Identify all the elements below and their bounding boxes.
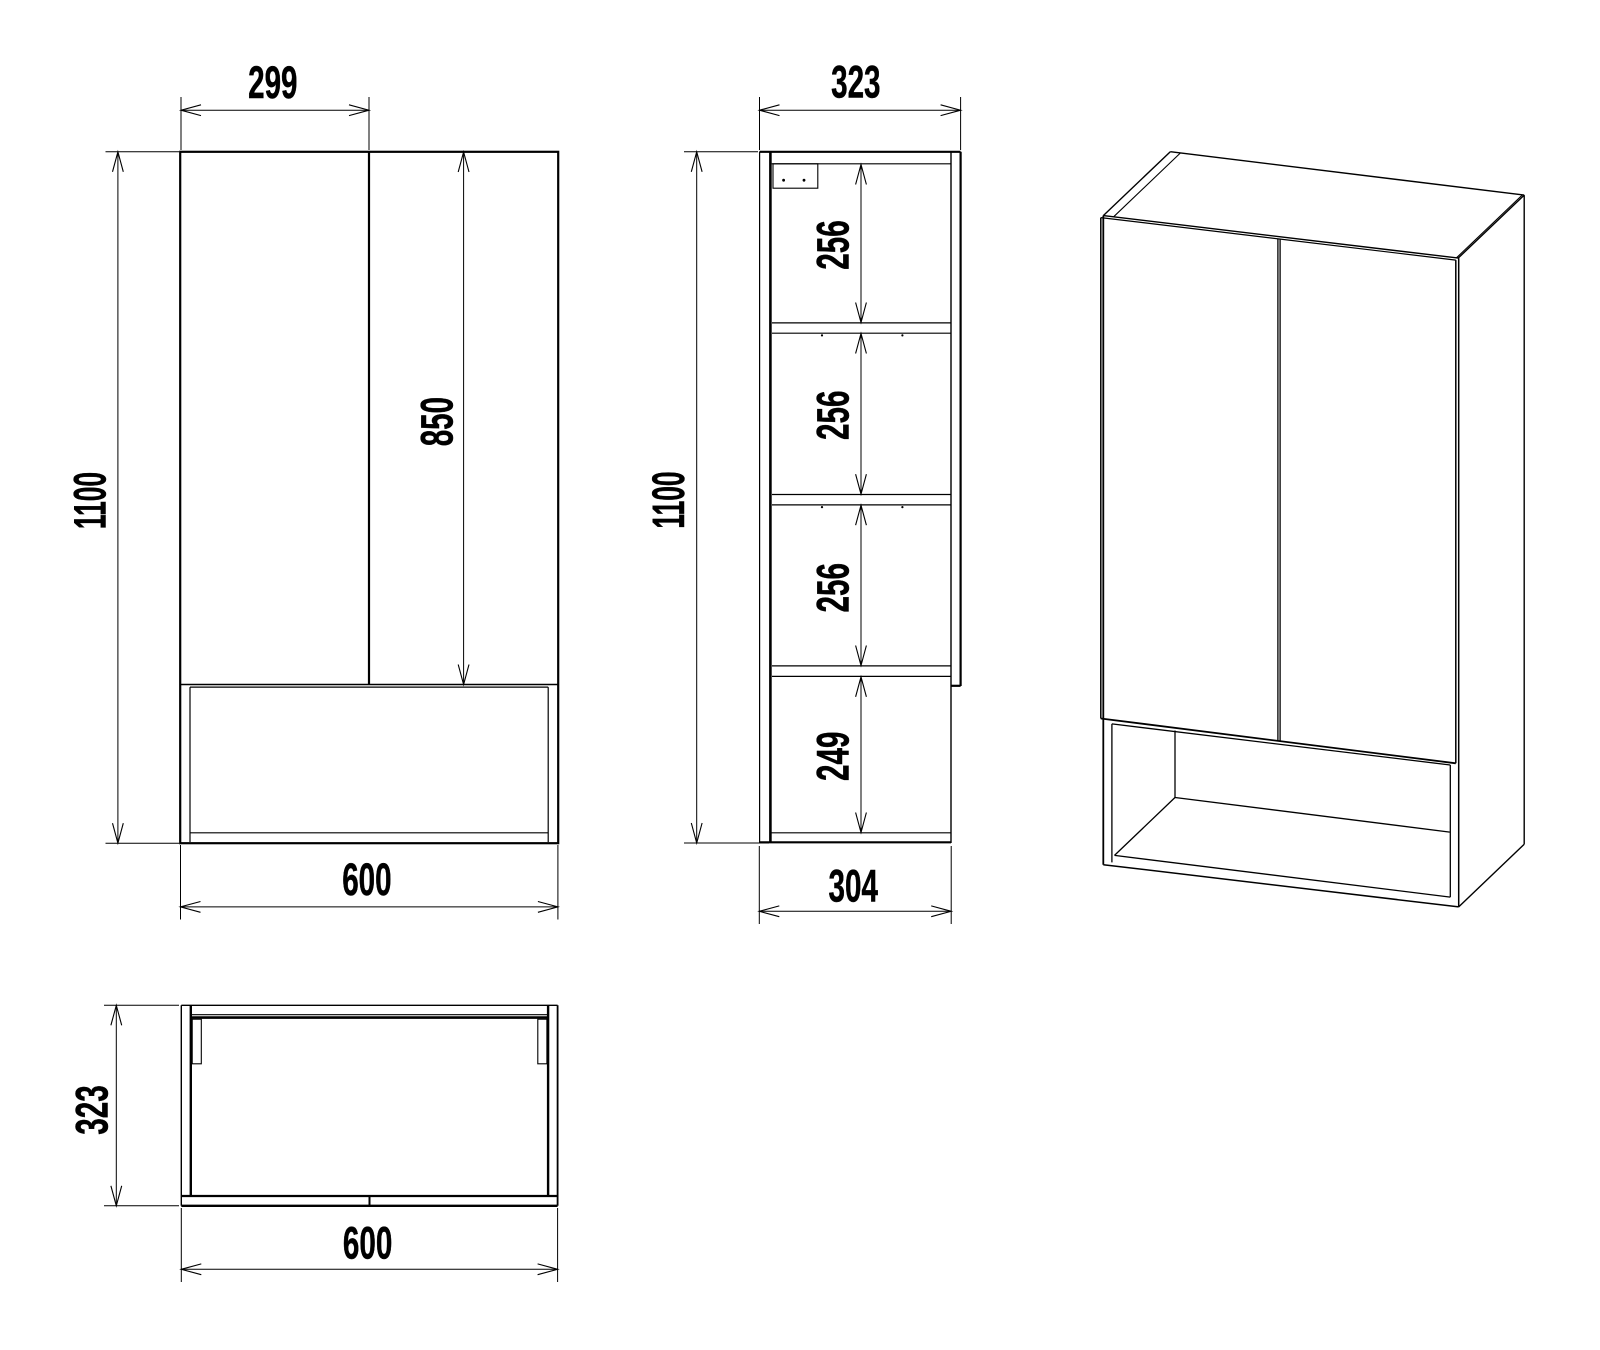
svg-text:256: 256 xyxy=(808,391,859,440)
svg-text:323: 323 xyxy=(67,1085,118,1134)
svg-text:1100: 1100 xyxy=(642,471,693,528)
svg-text:249: 249 xyxy=(808,732,859,781)
svg-text:256: 256 xyxy=(808,563,859,612)
svg-text:600: 600 xyxy=(342,855,391,906)
svg-text:304: 304 xyxy=(828,861,878,912)
svg-text:256: 256 xyxy=(808,220,859,269)
svg-text:299: 299 xyxy=(248,58,297,109)
svg-text:1100: 1100 xyxy=(64,472,115,529)
svg-text:850: 850 xyxy=(412,397,463,446)
svg-text:600: 600 xyxy=(343,1218,392,1269)
svg-text:323: 323 xyxy=(831,57,880,108)
